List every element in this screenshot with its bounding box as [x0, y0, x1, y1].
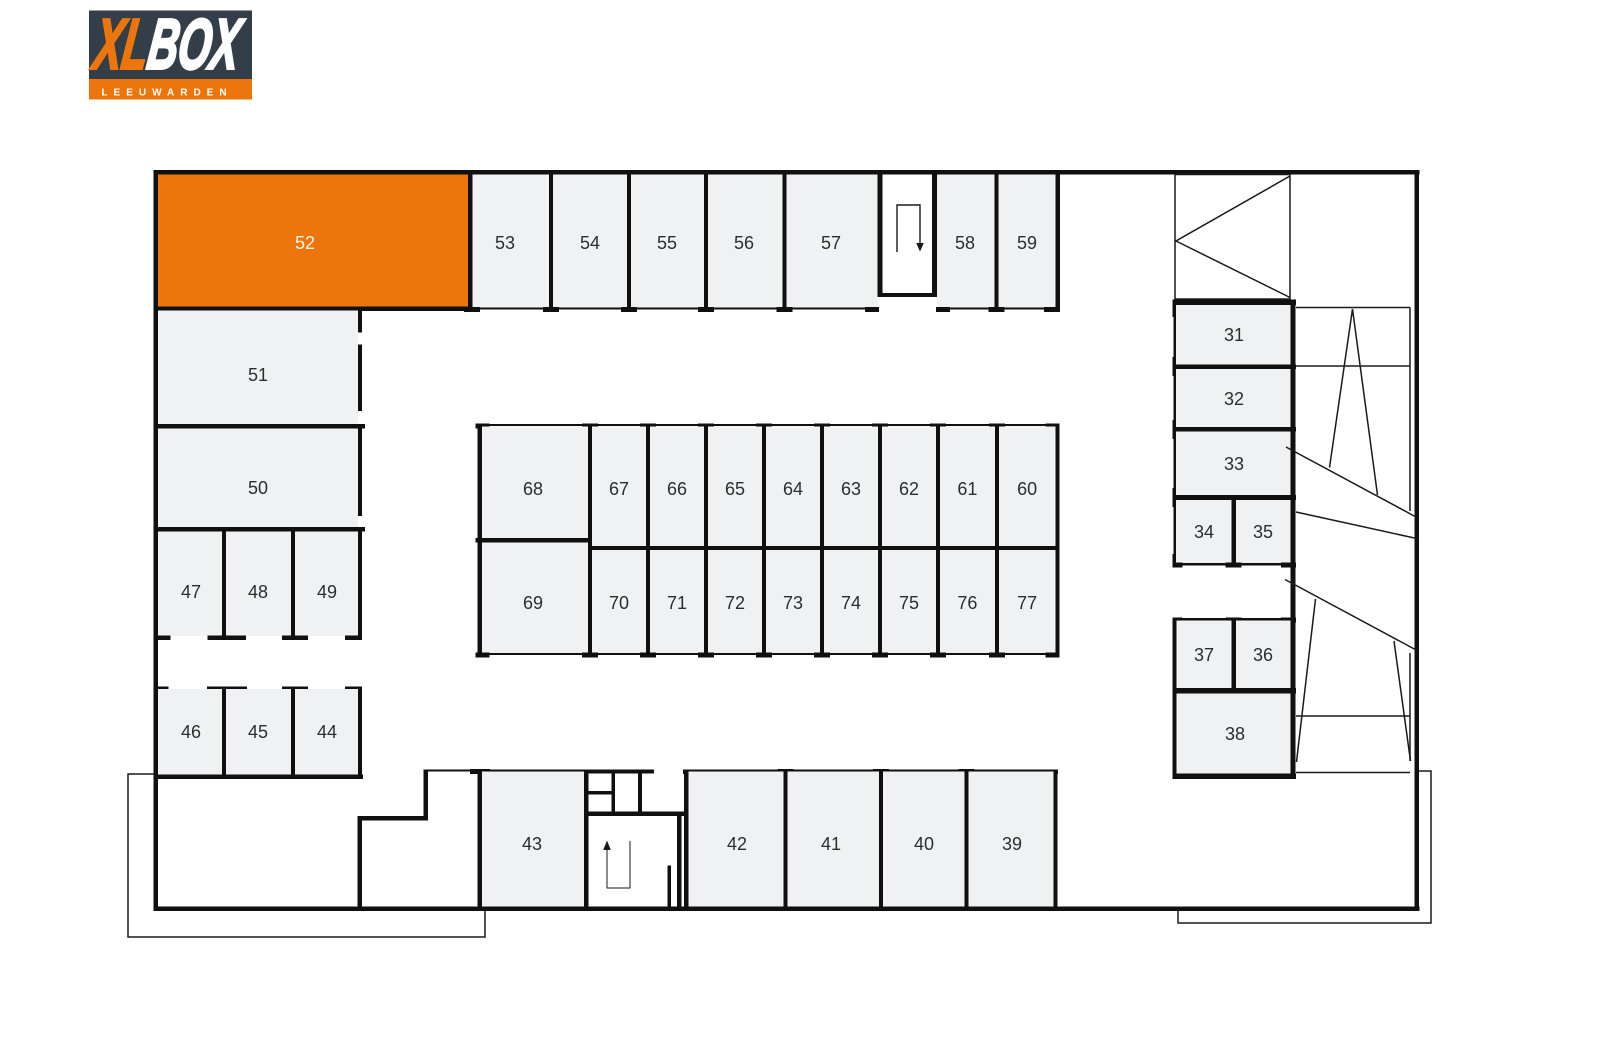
svg-text:33: 33 — [1224, 454, 1244, 474]
svg-text:43: 43 — [522, 834, 542, 854]
svg-text:32: 32 — [1224, 389, 1244, 409]
svg-text:62: 62 — [899, 479, 919, 499]
svg-text:40: 40 — [914, 834, 934, 854]
svg-text:74: 74 — [841, 593, 861, 613]
svg-text:44: 44 — [317, 722, 337, 742]
svg-text:61: 61 — [957, 479, 977, 499]
svg-text:67: 67 — [609, 479, 629, 499]
svg-text:54: 54 — [580, 233, 600, 253]
svg-text:65: 65 — [725, 479, 745, 499]
svg-text:36: 36 — [1253, 645, 1273, 665]
svg-text:68: 68 — [523, 479, 543, 499]
svg-text:57: 57 — [821, 233, 841, 253]
svg-text:71: 71 — [667, 593, 687, 613]
svg-text:69: 69 — [523, 593, 543, 613]
svg-text:73: 73 — [783, 593, 803, 613]
svg-text:39: 39 — [1002, 834, 1022, 854]
svg-text:66: 66 — [667, 479, 687, 499]
svg-text:53: 53 — [495, 233, 515, 253]
svg-text:63: 63 — [841, 479, 861, 499]
svg-text:70: 70 — [609, 593, 629, 613]
svg-text:56: 56 — [734, 233, 754, 253]
svg-text:58: 58 — [955, 233, 975, 253]
svg-text:52: 52 — [295, 233, 315, 253]
svg-text:47: 47 — [181, 582, 201, 602]
svg-text:75: 75 — [899, 593, 919, 613]
svg-text:38: 38 — [1225, 724, 1245, 744]
svg-text:42: 42 — [727, 834, 747, 854]
svg-text:45: 45 — [248, 722, 268, 742]
svg-text:55: 55 — [657, 233, 677, 253]
svg-text:77: 77 — [1017, 593, 1037, 613]
svg-text:XLBOX: XLBOX — [88, 6, 248, 85]
svg-text:59: 59 — [1017, 233, 1037, 253]
svg-text:50: 50 — [248, 478, 268, 498]
svg-text:31: 31 — [1224, 325, 1244, 345]
svg-text:46: 46 — [181, 722, 201, 742]
svg-text:41: 41 — [821, 834, 841, 854]
svg-text:34: 34 — [1194, 522, 1214, 542]
svg-text:35: 35 — [1253, 522, 1273, 542]
svg-text:64: 64 — [783, 479, 803, 499]
svg-text:49: 49 — [317, 582, 337, 602]
svg-text:76: 76 — [957, 593, 977, 613]
svg-text:48: 48 — [248, 582, 268, 602]
svg-text:60: 60 — [1017, 479, 1037, 499]
svg-text:51: 51 — [248, 365, 268, 385]
svg-text:37: 37 — [1194, 645, 1214, 665]
svg-text:72: 72 — [725, 593, 745, 613]
svg-text:LEEUWARDEN: LEEUWARDEN — [101, 88, 232, 99]
